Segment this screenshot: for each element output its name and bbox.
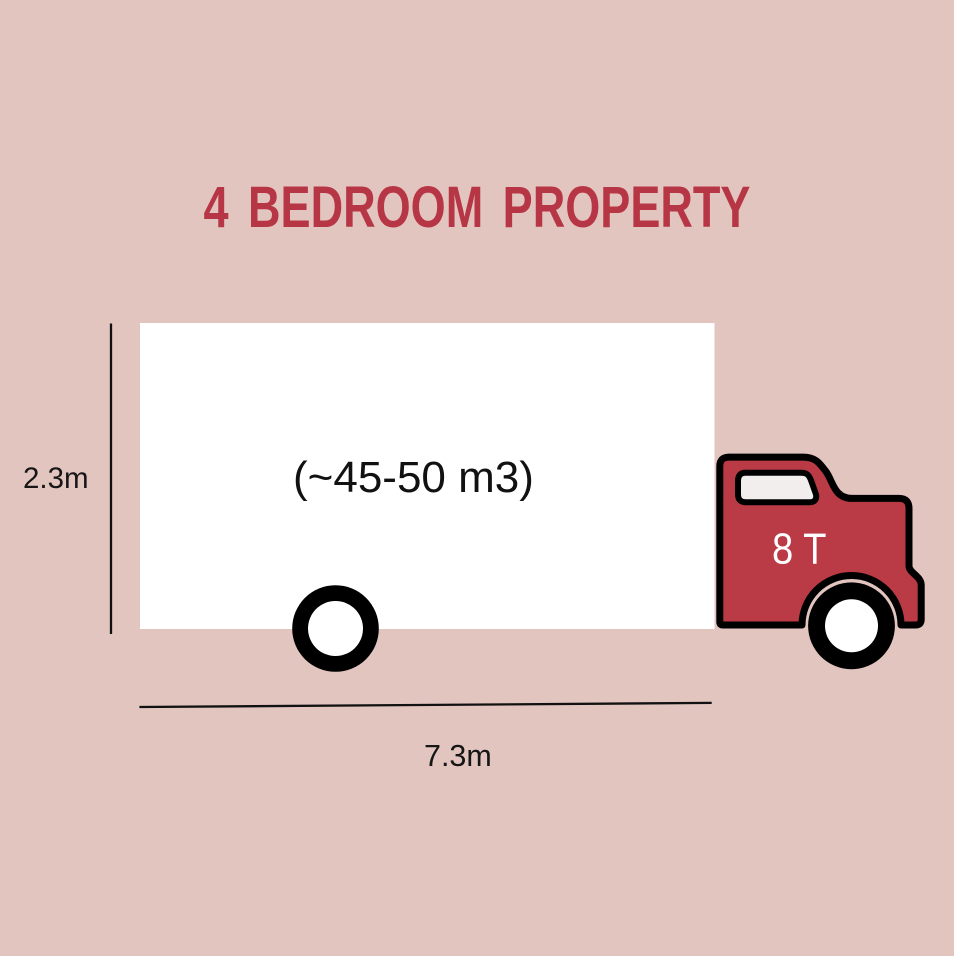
svg-text:8 T: 8 T [772,525,827,574]
